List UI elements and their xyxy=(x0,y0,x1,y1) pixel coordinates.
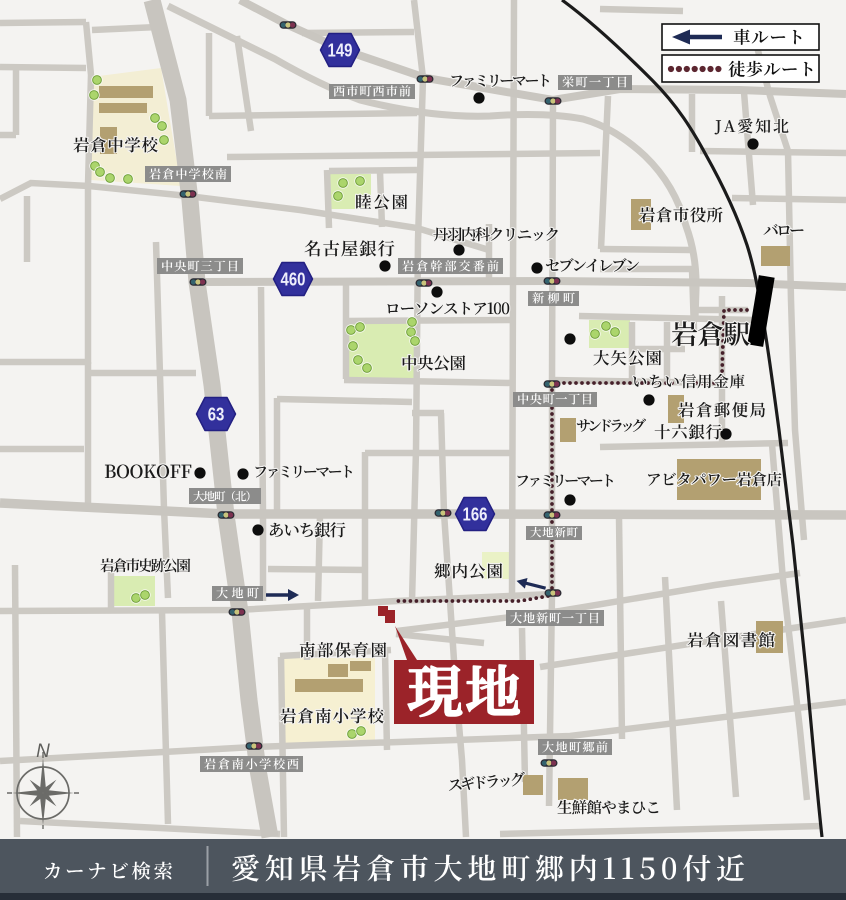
svg-text:460: 460 xyxy=(281,269,306,289)
svg-text:N: N xyxy=(36,741,50,762)
svg-text:149: 149 xyxy=(328,40,353,60)
svg-text:63: 63 xyxy=(208,403,225,424)
svg-text:166: 166 xyxy=(463,504,488,524)
